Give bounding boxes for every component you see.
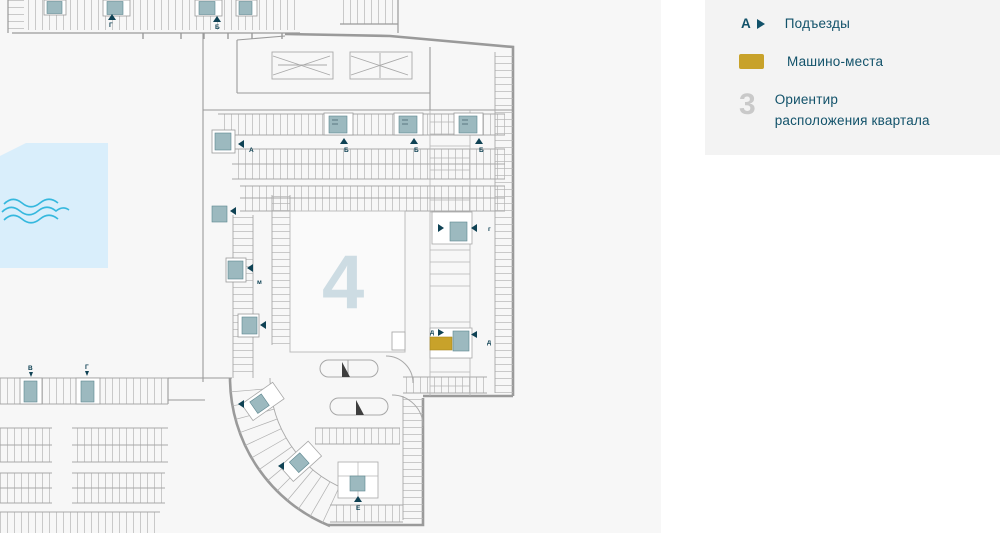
stair-core[interactable]: [195, 0, 222, 16]
parking-swatch-icon: [739, 54, 764, 69]
entrance-arrow-icon[interactable]: [410, 138, 418, 144]
entrance-arrow-icon[interactable]: [260, 321, 266, 329]
entrance-arrow-icon[interactable]: [85, 371, 89, 376]
entrance-letter[interactable]: Е: [356, 505, 361, 512]
stair-core[interactable]: [44, 0, 66, 15]
pond: [0, 143, 108, 268]
parking-spot-highlight[interactable]: [430, 337, 452, 350]
entrance-letter[interactable]: д: [430, 329, 434, 336]
entrance-arrow-icon[interactable]: [238, 400, 244, 408]
stair-core[interactable]: [280, 441, 322, 481]
legend-parking-label: Машино-места: [787, 54, 883, 69]
entrance-arrow-icon[interactable]: [230, 207, 236, 215]
entrance-letter[interactable]: Б: [414, 147, 419, 154]
stair-core[interactable]: [236, 0, 257, 16]
entrance-arrow-icon[interactable]: [278, 462, 284, 470]
entrance-letter[interactable]: Г: [109, 22, 113, 29]
legend-district-line1: Ориентир: [775, 90, 930, 111]
stair-core[interactable]: [242, 382, 285, 420]
entrance-letter[interactable]: Б: [344, 147, 349, 154]
stair-core[interactable]: [338, 462, 378, 498]
stair-core[interactable]: [212, 206, 236, 222]
stair-core[interactable]: [76, 378, 100, 404]
floor-plan-svg: Г Б: [0, 0, 661, 533]
legend-entrances: А Подъезды: [741, 16, 1000, 31]
entrance-letter[interactable]: г: [488, 226, 491, 233]
ramp-wedge: [356, 400, 364, 415]
legend-district-line2: расположения квартала: [775, 111, 930, 132]
entrance-letter[interactable]: Б: [479, 147, 484, 154]
entrance-letter[interactable]: В: [28, 365, 33, 372]
legend-panel: А Подъезды Машино-места 3 Ориентир распо…: [705, 0, 1000, 155]
stair-core[interactable]: [324, 113, 353, 135]
ramp-wedge: [342, 362, 350, 377]
district-number: 3: [739, 90, 756, 120]
entrance-letter[interactable]: д: [487, 339, 491, 346]
legend-parking: Машино-места: [739, 54, 1000, 69]
floor-plan: Г Б: [0, 0, 661, 533]
stair-core[interactable]: [394, 113, 423, 135]
courtyard: 4: [290, 211, 405, 352]
stair-core[interactable]: [20, 378, 42, 404]
entrance-letter[interactable]: м: [257, 279, 262, 286]
entrance-letter[interactable]: Г: [85, 364, 89, 371]
stair-core[interactable]: [432, 212, 477, 244]
entrance-arrow-icon[interactable]: [29, 372, 33, 377]
entrance-arrow-icon[interactable]: [475, 138, 483, 144]
stair-core[interactable]: [454, 113, 483, 135]
stair-core[interactable]: [103, 0, 130, 16]
legend-entrances-label: Подъезды: [785, 16, 850, 31]
page: Г Б: [0, 0, 1000, 533]
entrance-letter[interactable]: А: [249, 147, 254, 154]
quarter-number: 4: [322, 240, 364, 325]
entrance-arrow-icon[interactable]: [340, 138, 348, 144]
entrance-letter[interactable]: Б: [215, 24, 220, 31]
bottom-left-parking: В Г: [0, 364, 168, 533]
entrance-arrow-icon: [757, 19, 765, 29]
stair-core[interactable]: [212, 130, 235, 153]
entrance-arrow-icon[interactable]: [238, 140, 244, 148]
ramp-building: [272, 52, 412, 79]
entrance-symbol: А: [741, 16, 751, 31]
legend-district: 3 Ориентир расположения квартала: [739, 90, 1000, 132]
stair-core[interactable]: [238, 314, 266, 337]
